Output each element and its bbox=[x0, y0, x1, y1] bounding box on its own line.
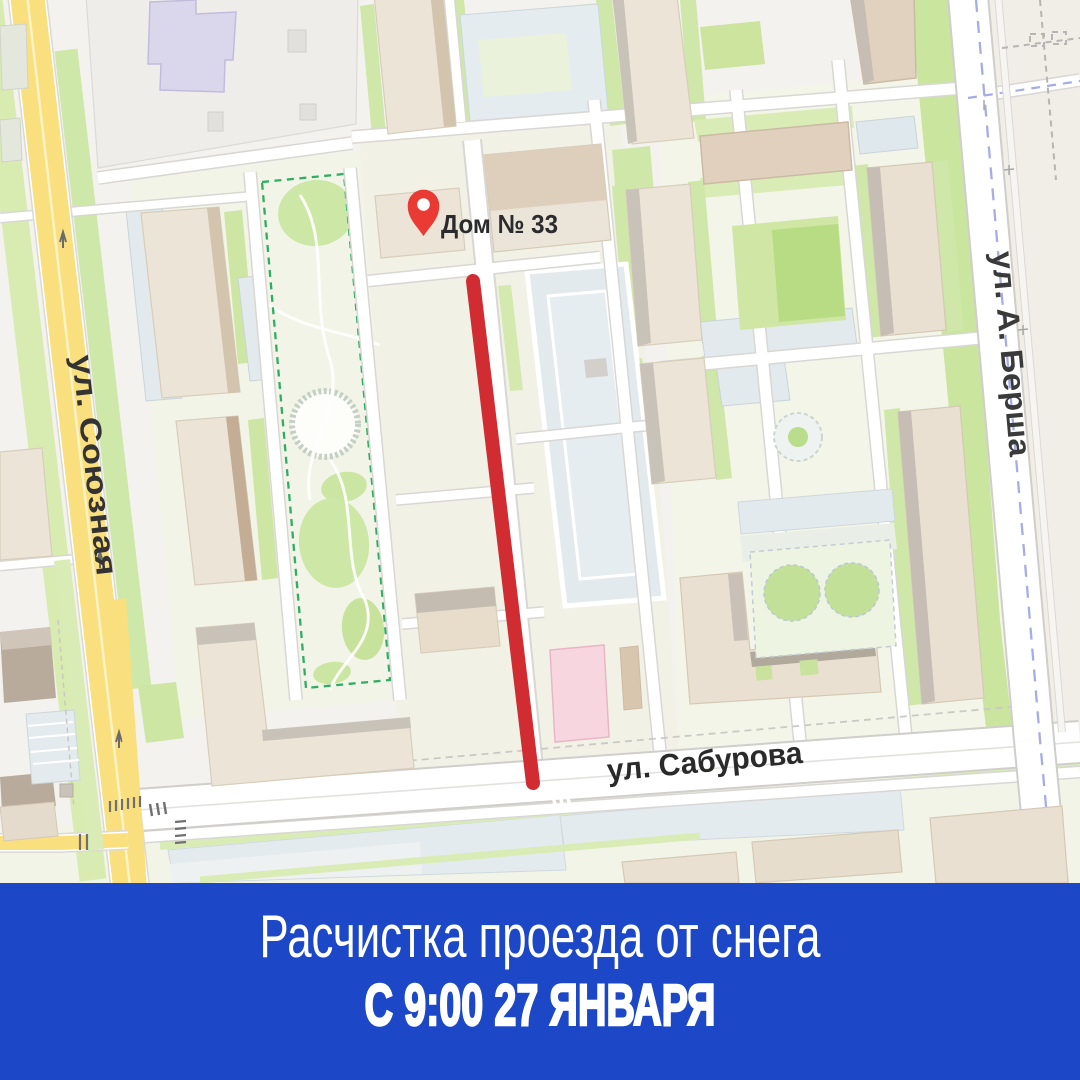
svg-text:Расчистка проезда от снега: Расчистка проезда от снега bbox=[260, 903, 821, 970]
svg-text:С 9:00 27 ЯНВАРЯ: С 9:00 27 ЯНВАРЯ bbox=[365, 973, 716, 1038]
svg-text:Дом № 33: Дом № 33 bbox=[441, 209, 558, 239]
